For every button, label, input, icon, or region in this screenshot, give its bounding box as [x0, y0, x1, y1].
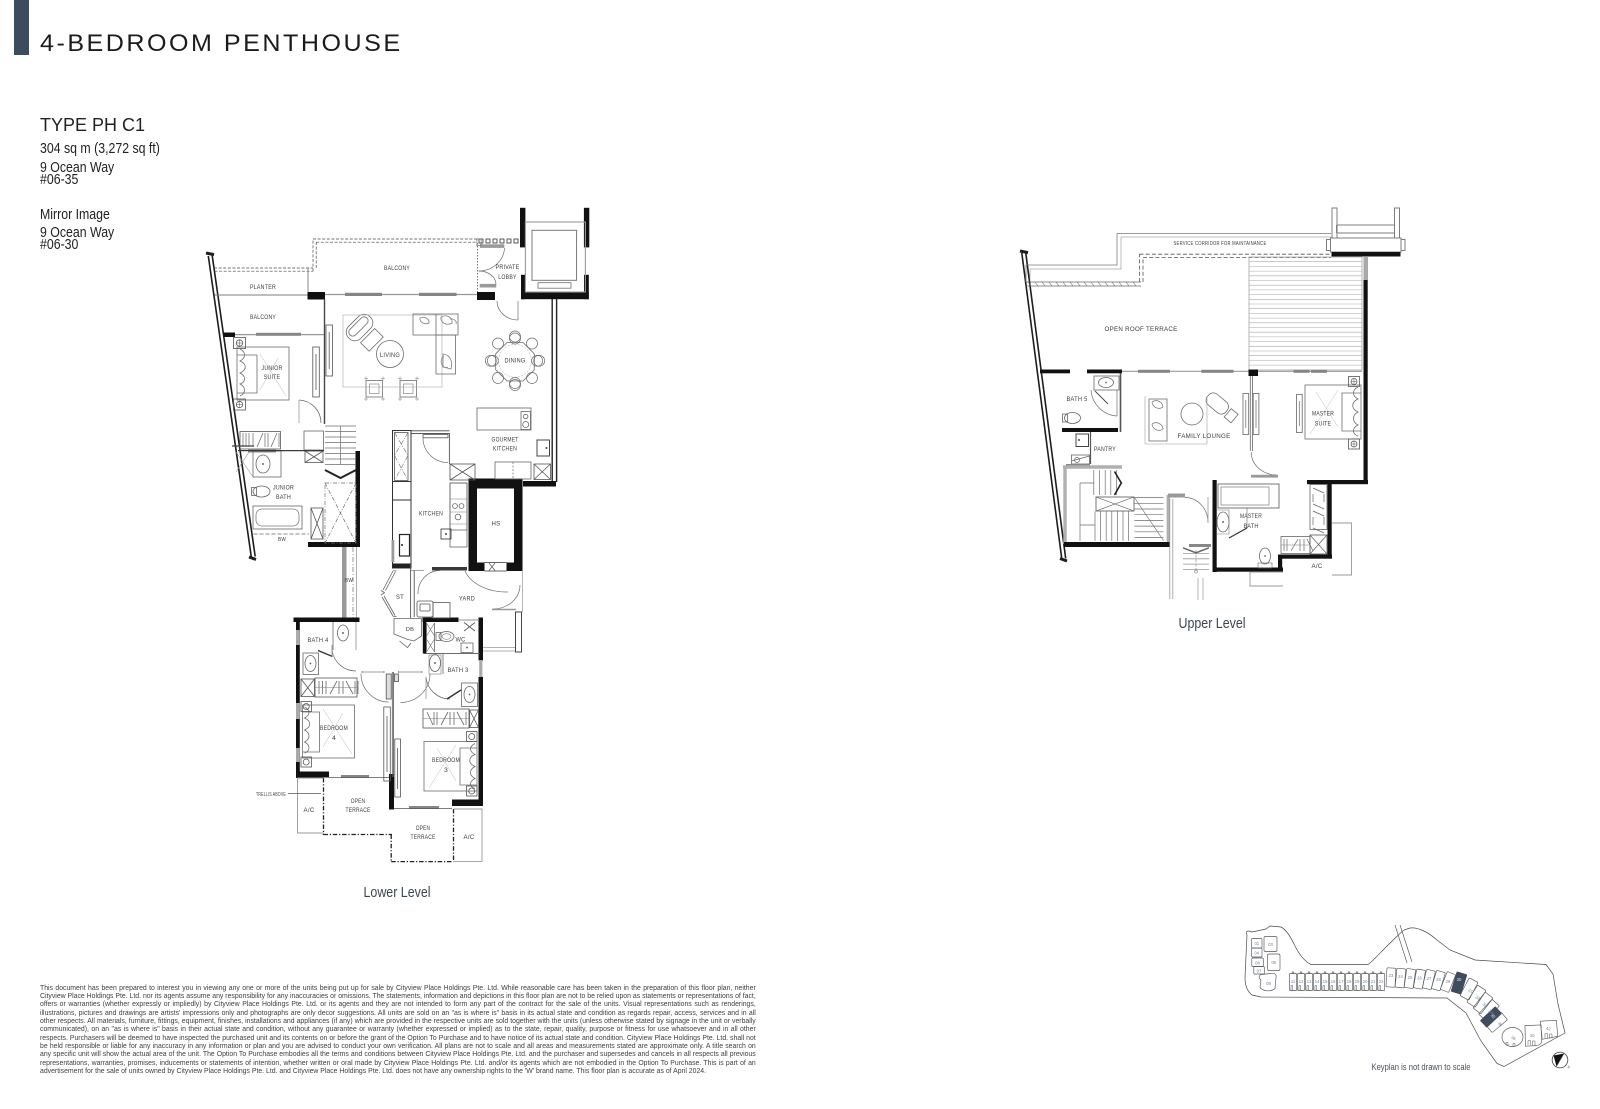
- svg-text:GOURMET: GOURMET: [492, 437, 519, 444]
- svg-text:38: 38: [1510, 1034, 1517, 1041]
- svg-text:BATH 5: BATH 5: [1067, 396, 1088, 403]
- svg-text:16: 16: [1331, 979, 1336, 984]
- svg-text:BW: BW: [278, 537, 286, 543]
- svg-text:BATH 3: BATH 3: [448, 667, 469, 674]
- svg-text:YARD: YARD: [459, 596, 475, 603]
- svg-text:OPEN ROOF TERRACE: OPEN ROOF TERRACE: [1105, 326, 1178, 333]
- svg-text:A/C: A/C: [464, 834, 475, 841]
- svg-text:ST: ST: [396, 594, 404, 601]
- svg-text:13: 13: [1307, 979, 1312, 984]
- svg-text:LOBBY: LOBBY: [498, 274, 517, 281]
- svg-text:JUNIOR: JUNIOR: [262, 365, 283, 372]
- svg-text:OPEN: OPEN: [351, 798, 366, 805]
- svg-text:42: 42: [1546, 1026, 1552, 1032]
- svg-text:MASTER: MASTER: [1312, 411, 1334, 418]
- svg-text:WC: WC: [456, 637, 466, 644]
- svg-text:19: 19: [1355, 979, 1360, 984]
- svg-text:14: 14: [1315, 979, 1320, 984]
- svg-text:BALCONY: BALCONY: [384, 265, 410, 272]
- svg-text:PLANTER: PLANTER: [250, 284, 276, 291]
- svg-text:03: 03: [1268, 942, 1273, 947]
- svg-text:18: 18: [1347, 979, 1352, 984]
- svg-text:01: 01: [1254, 941, 1259, 946]
- svg-text:FAMILY LOUNGE: FAMILY LOUNGE: [1178, 433, 1231, 440]
- svg-text:DB: DB: [406, 627, 415, 633]
- svg-text:26: 26: [1417, 976, 1422, 981]
- svg-text:BATH: BATH: [1244, 523, 1259, 530]
- svg-text:BEDROOM: BEDROOM: [320, 725, 348, 732]
- svg-text:09: 09: [1266, 981, 1271, 986]
- svg-text:27: 27: [1427, 976, 1432, 981]
- svg-text:SERVICE CORRIDOR FOR MAINTA: SERVICE CORRIDOR FOR MAINTAINANCE: [1174, 241, 1267, 247]
- svg-text:TERRACE: TERRACE: [346, 807, 371, 814]
- svg-text:BALCONY: BALCONY: [250, 314, 276, 321]
- svg-text:29: 29: [1446, 979, 1451, 984]
- svg-text:39: 39: [1530, 1033, 1536, 1039]
- svg-text:N: N: [1566, 1065, 1571, 1070]
- svg-text:30: 30: [1457, 977, 1462, 982]
- svg-text:23: 23: [1389, 973, 1394, 978]
- svg-text:LIVING: LIVING: [380, 352, 400, 359]
- svg-text:TERRACE: TERRACE: [411, 834, 436, 841]
- svg-text:28: 28: [1436, 977, 1441, 982]
- svg-text:TRELLIS ABOVE: TRELLIS ABOVE: [256, 792, 286, 798]
- svg-text:17: 17: [1339, 979, 1344, 984]
- svg-text:3: 3: [444, 767, 448, 774]
- svg-text:A/C: A/C: [304, 807, 315, 814]
- svg-text:BATH: BATH: [276, 494, 291, 501]
- svg-text:04: 04: [1254, 951, 1259, 956]
- svg-text:25: 25: [1408, 975, 1413, 980]
- svg-text:HS: HS: [492, 521, 501, 528]
- svg-text:BATH 4: BATH 4: [308, 637, 329, 644]
- svg-text:DINING: DINING: [505, 358, 526, 365]
- svg-text:PRIVATE: PRIVATE: [496, 264, 520, 271]
- svg-text:A/C: A/C: [1312, 563, 1323, 570]
- svg-text:33: 33: [1482, 1001, 1489, 1008]
- svg-text:21: 21: [1371, 979, 1376, 984]
- svg-text:12: 12: [1299, 979, 1304, 984]
- svg-text:Lower Level: Lower Level: [364, 885, 431, 901]
- svg-text:KITCHEN: KITCHEN: [419, 511, 443, 518]
- svg-text:OPEN: OPEN: [416, 825, 431, 832]
- svg-text:PANTRY: PANTRY: [1094, 446, 1116, 453]
- svg-text:20: 20: [1363, 979, 1368, 984]
- svg-text:08: 08: [1255, 961, 1260, 966]
- svg-text:KITCHEN: KITCHEN: [493, 446, 517, 453]
- svg-text:24: 24: [1398, 974, 1403, 979]
- svg-text:4: 4: [332, 735, 336, 742]
- svg-text:SUITE: SUITE: [264, 374, 281, 381]
- svg-text:BEDROOM: BEDROOM: [432, 757, 460, 764]
- svg-text:05: 05: [1271, 960, 1276, 965]
- svg-text:SUITE: SUITE: [1315, 421, 1332, 428]
- svg-text:36: 36: [1497, 1021, 1504, 1028]
- svg-text:07: 07: [1257, 969, 1262, 974]
- svg-text:22: 22: [1379, 979, 1384, 984]
- svg-text:MASTER: MASTER: [1240, 513, 1262, 520]
- svg-text:11: 11: [1291, 979, 1296, 984]
- svg-text:Keyplan is not drawn to scale: Keyplan is not drawn to scale: [1372, 1062, 1471, 1073]
- svg-text:15: 15: [1323, 979, 1328, 984]
- svg-text:JUNIOR: JUNIOR: [273, 485, 294, 492]
- svg-text:BW: BW: [345, 578, 353, 584]
- svg-text:Upper Level: Upper Level: [1179, 616, 1246, 632]
